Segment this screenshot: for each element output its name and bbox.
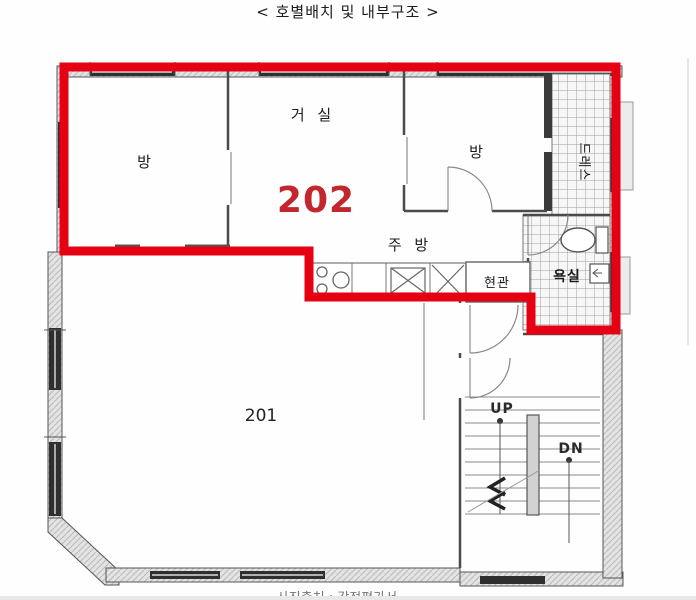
exterior-ledges [617,58,688,345]
wall-dress-left-lower [544,152,552,211]
bottom-gray-bar [0,596,696,600]
wall-right-stairs [603,330,622,578]
toilet-icon [561,228,595,252]
label-unit-202: 202 [277,180,355,221]
door-arc-room-right [448,167,492,211]
label-living: 거 실 [291,106,335,124]
label-room-left: 방 [137,153,155,171]
tiled-areas [523,74,610,330]
door-arc-202-entrance [470,305,518,353]
label-dn: DN [558,441,583,457]
label-unit-201: 201 [245,406,277,426]
label-kitchen: 주 방 [388,236,432,254]
stairwell [465,397,600,543]
window-stairs-bottom [480,576,545,584]
floorplan-page: < 호별배치 및 내부구조 > 방 거 실 202 방 주 방 현관 욕실 드레… [0,0,696,600]
ledge-1 [620,102,633,190]
label-dressroom: 드레스 [576,143,591,182]
label-entrance: 현관 [484,276,510,291]
label-bath: 욕실 [553,269,581,285]
toilet-tank-icon [596,227,608,253]
stair-stringer [527,415,539,515]
label-up: UP [490,401,514,417]
label-room-right: 방 [469,143,487,161]
entry-doors [470,305,518,398]
page-title: < 호별배치 및 내부구조 > [256,3,439,21]
floorplan-drawing: < 호별배치 및 내부구조 > 방 거 실 202 방 주 방 현관 욕실 드레… [0,0,696,600]
door-arc-201-entrance [470,358,510,398]
wall-dress-left-upper [544,74,552,138]
